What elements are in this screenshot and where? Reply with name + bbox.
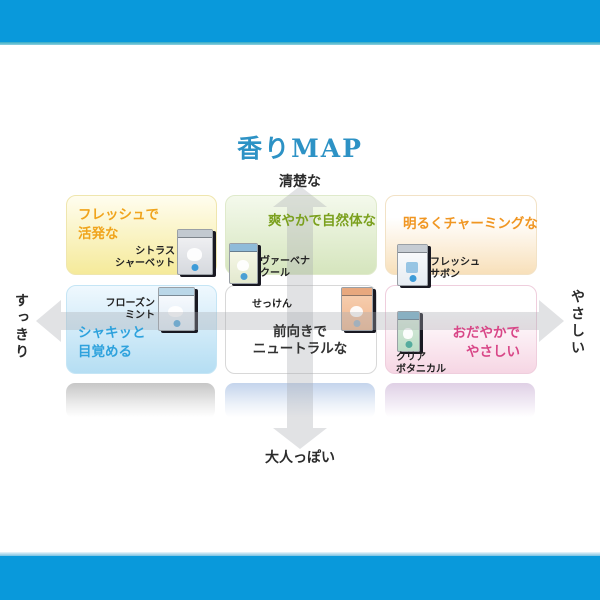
text-line: 前向きで [225,323,375,340]
vertical-axis-arrowhead-up-icon [273,186,327,207]
text-line: シャキッと [78,323,146,342]
faded-cell-right [385,383,535,419]
package-seal [230,244,257,252]
text-line: 目覚める [78,342,146,361]
fresh-savon-package-icon [397,244,428,286]
fragrance-map-page: 香りMAP 清楚な 大人っぽい すっきり やさしい [0,0,600,600]
package-seal [398,245,427,253]
top-frame-bar [0,0,600,42]
package-cap-dot [409,275,416,282]
package-cap-dot [192,264,199,271]
package-seal [178,230,212,238]
text-line: フレッシュ [430,257,480,269]
top-frame-bar-edge [0,42,600,45]
package-seal [159,288,194,296]
text-line: ニュートラルな [225,340,375,357]
text-line: フローズン [75,298,155,310]
package-cap-dot [405,341,412,348]
text-line: フレッシュで [78,205,159,224]
package-graphic [237,260,249,271]
product-label-frozen-mint: フローズン ミント [75,298,155,321]
bottom-frame-bar [0,556,600,600]
text-line: シャーベット [95,258,175,270]
text-line: サボン [430,269,480,281]
quadrant-text-fresh-active: フレッシュで 活発な [78,205,159,243]
horizontal-axis-arrowhead-left-icon [36,300,61,342]
text-line: 活発な [78,224,159,243]
package-graphic [187,248,202,260]
axis-label-left: すっきり [12,293,32,361]
axis-label-right: やさしい [568,289,588,357]
faded-cell-left [66,383,215,419]
quadrant-text-natural: 爽やかで自然体な [268,211,376,230]
product-label-clear-botanical: クリア ボタニカル [396,352,446,375]
quadrant-text-charming: 明るくチャーミングな [403,214,538,233]
product-label-verbena-cool: ヴァーベナ クール [260,256,310,279]
text-line: クリア [396,352,446,364]
text-line: ヴァーベナ [260,256,310,268]
package-seal [342,288,372,296]
package-cap-dot [240,273,247,280]
vertical-axis-arrowhead-down-icon [273,428,327,449]
quadrant-text-awake: シャキッと 目覚める [78,323,146,361]
product-label-citrus-sherbet: シトラス シャーベット [95,246,175,269]
package-graphic [406,262,419,273]
product-label-soap: せっけん [252,299,292,311]
horizontal-axis-arrowhead-right-icon [539,300,564,342]
text-line: シトラス [95,246,175,258]
verbena-cool-package-icon [229,243,258,284]
product-label-fresh-savon: フレッシュ サボン [430,257,480,280]
package-graphic [403,328,412,339]
citrus-sherbet-package-icon [177,229,213,275]
page-title: 香りMAP [0,129,600,165]
text-line: ミント [75,310,155,322]
quadrant-text-neutral: 前向きで ニュートラルな [225,323,375,357]
text-line: ボタニカル [396,364,446,376]
text-line: クール [260,268,310,280]
text-line: おだやかで [420,323,520,342]
axis-label-bottom: 大人っぽい [0,447,600,467]
